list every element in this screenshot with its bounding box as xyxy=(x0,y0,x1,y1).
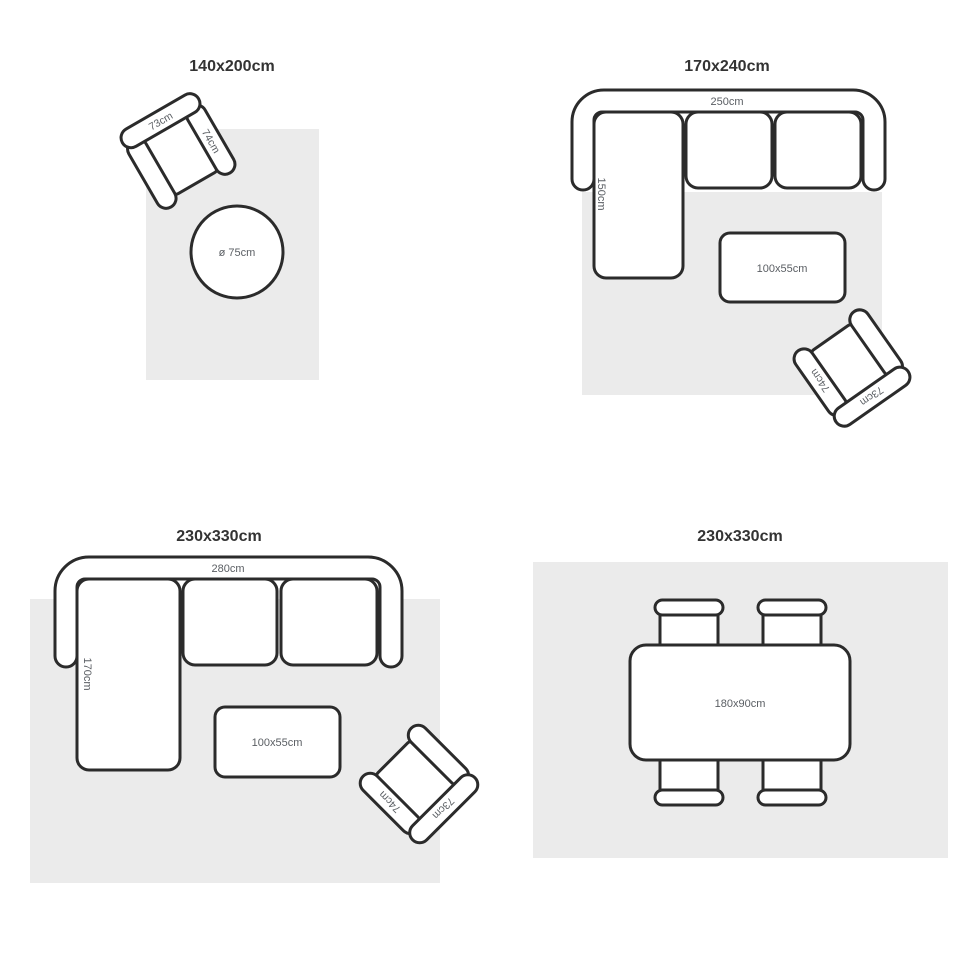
sofa-depth-label: 170cm xyxy=(81,657,93,690)
panel-title: 170x240cm xyxy=(684,58,769,75)
coffee-table-size-label: 100x55cm xyxy=(252,737,303,749)
dining-chair-seat xyxy=(763,612,821,648)
sofa-seat-cushion xyxy=(183,579,277,665)
panel-title: 140x200cm xyxy=(189,58,274,75)
panel-230x330-dining: 230x330cm 180x90cm xyxy=(533,528,948,858)
dining-table-size-label: 180x90cm xyxy=(715,698,766,710)
sofa-width-label: 280cm xyxy=(211,563,244,575)
coffee-table-size-label: 100x55cm xyxy=(757,263,808,275)
sofa-seat-cushion xyxy=(686,112,772,188)
dining-chair-backrest xyxy=(758,790,826,805)
dining-chair-backrest xyxy=(655,790,723,805)
panel-title: 230x330cm xyxy=(697,528,782,545)
sofa-depth-label: 150cm xyxy=(595,177,607,210)
sofa-width-label: 250cm xyxy=(710,96,743,108)
sofa-seat-cushion xyxy=(775,112,861,188)
size-guide-diagram: 140x200cm 73cm 74cm ø 75cm 170x240cm 250… xyxy=(0,0,970,970)
dining-chair-bottom-left xyxy=(655,755,723,805)
panel-140x200: 140x200cm 73cm 74cm ø 75cm xyxy=(117,58,319,380)
round-table-diameter-label: ø 75cm xyxy=(219,247,256,259)
dining-chair-seat xyxy=(660,612,718,648)
sofa-seat-cushion xyxy=(281,579,377,665)
panel-230x330-living: 230x330cm 280cm 170cm 100x55cm 73cm 74cm xyxy=(30,528,482,883)
panel-title: 230x330cm xyxy=(176,528,261,545)
dining-chair-bottom-right xyxy=(758,755,826,805)
dining-chair-backrest xyxy=(655,600,723,615)
panel-170x240: 170x240cm 250cm 150cm 100x55cm 73cm 74cm xyxy=(572,58,914,430)
dining-chair-backrest xyxy=(758,600,826,615)
dining-chair-top-right xyxy=(758,600,826,648)
dining-chair-top-left xyxy=(655,600,723,648)
rug-size-guide: 140x200cm 73cm 74cm ø 75cm 170x240cm 250… xyxy=(0,0,970,970)
